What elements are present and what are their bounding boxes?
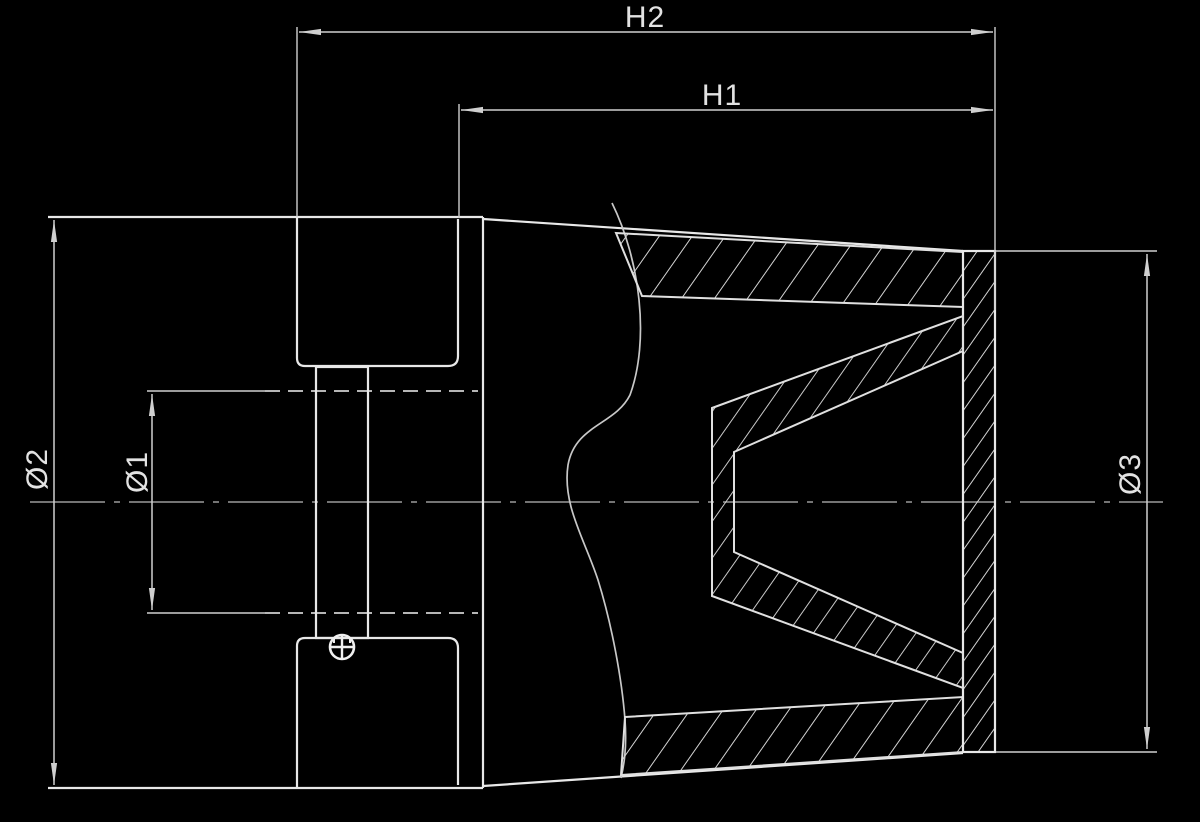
filter-media-section-bottom (621, 697, 963, 775)
technical-drawing (0, 0, 1200, 822)
dim-h1 (459, 104, 993, 218)
filter-media-section-top (616, 233, 963, 307)
break-line (567, 203, 640, 778)
neck-cavity-bottom (297, 638, 458, 787)
h2-dimension-label: H2 (625, 1, 665, 35)
drawing-stage: H2 H1 Ø2 Ø1 Ø3 (0, 0, 1200, 822)
h1-dimension-label: H1 (702, 79, 742, 113)
clamp-screw-icon (330, 635, 354, 659)
d3-dimension-label: Ø3 (1114, 453, 1148, 495)
d1-dimension-label: Ø1 (121, 451, 155, 493)
d2-dimension-label: Ø2 (21, 448, 55, 490)
end-cap-section (963, 251, 995, 752)
neck-cavity-top (297, 218, 458, 366)
